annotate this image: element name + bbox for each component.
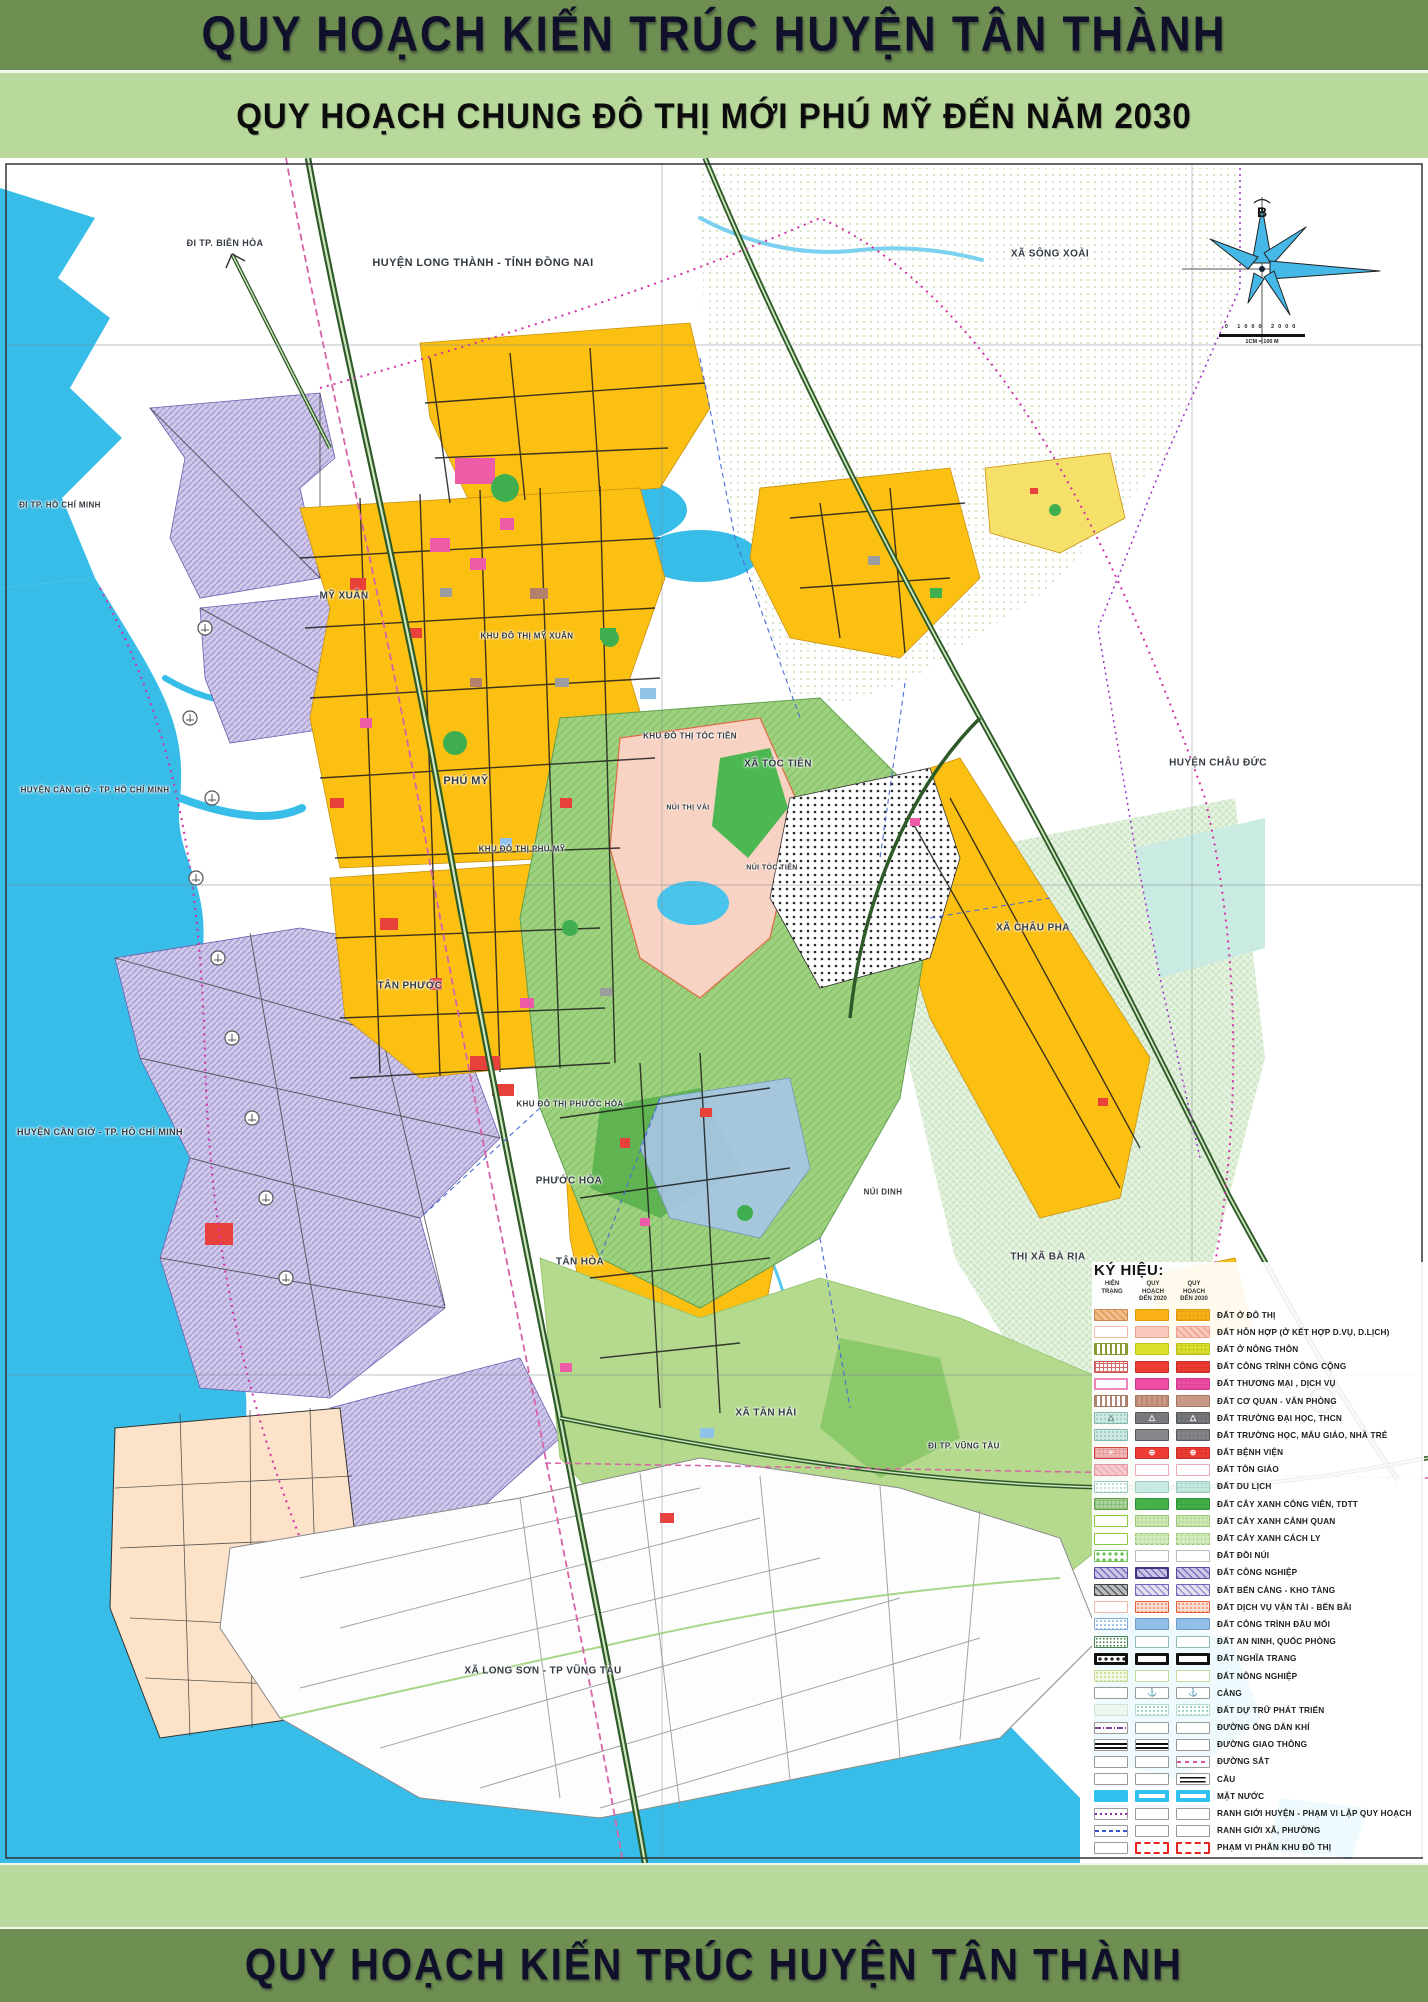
legend-row: ĐẤT CƠ QUAN - VĂN PHÒNG bbox=[1094, 1392, 1424, 1409]
legend-row: ĐẤT CÂY XANH CẢNH QUAN bbox=[1094, 1513, 1424, 1530]
legend-row-label: ĐẤT HỖN HỢP (Ở KẾT HỢP D.VỤ, D.LỊCH) bbox=[1217, 1328, 1424, 1337]
legend-swatch bbox=[1094, 1636, 1128, 1648]
legend-row: ĐẤT CÂY XANH CÁCH LY bbox=[1094, 1530, 1424, 1547]
legend-swatch: ⚓ bbox=[1135, 1687, 1169, 1699]
bottom-strip bbox=[0, 1863, 1428, 1929]
legend-swatch bbox=[1094, 1790, 1128, 1802]
legend-swatch bbox=[1176, 1584, 1210, 1596]
map-label: KHU ĐÔ THỊ TÓC TIÊN bbox=[643, 732, 737, 741]
legend-row-label: RANH GIỚI HUYỆN - PHẠM VI LẬP QUY HOẠCH bbox=[1217, 1809, 1424, 1818]
bottom-banner: QUY HOẠCH KIẾN TRÚC HUYỆN TÂN THÀNH bbox=[0, 1927, 1428, 2002]
scale-ticks: 0 1000 2000 bbox=[1225, 324, 1300, 330]
map-label: XÃ TÂN HẢI bbox=[735, 1408, 796, 1419]
legend-swatch bbox=[1176, 1481, 1210, 1493]
legend-row: △△△ĐẤT TRƯỜNG ĐẠI HỌC, THCN bbox=[1094, 1410, 1424, 1427]
legend-row: ĐẤT CÂY XANH CÔNG VIÊN, TDTT bbox=[1094, 1496, 1424, 1513]
legend-col-existing: HIỆN TRẠNG bbox=[1094, 1281, 1130, 1304]
legend-swatch: △ bbox=[1135, 1412, 1169, 1424]
legend-swatch bbox=[1176, 1722, 1210, 1734]
page-subtitle: QUY HOẠCH CHUNG ĐÔ THỊ MỚI PHÚ MỸ ĐẾN NĂ… bbox=[236, 95, 1191, 136]
map-label: HUYỆN CHÂU ĐỨC bbox=[1169, 758, 1267, 769]
legend-row-label: ĐẤT ĐỒI NÚI bbox=[1217, 1551, 1424, 1560]
legend-row-label: ĐẤT DỊCH VỤ VẬN TẢI - BẾN BÃI bbox=[1217, 1603, 1424, 1612]
legend-row-label: PHẠM VI PHÂN KHU ĐÔ THỊ bbox=[1217, 1843, 1424, 1852]
legend-row: ĐƯỜNG SẮT bbox=[1094, 1753, 1424, 1770]
map-label: XÃ SÔNG XOÀI bbox=[1011, 249, 1089, 260]
legend-row: ĐẤT TÔN GIÁO bbox=[1094, 1461, 1424, 1478]
legend-row: ĐẤT CÔNG NGHIỆP bbox=[1094, 1564, 1424, 1581]
legend-swatch bbox=[1135, 1464, 1169, 1476]
legend-swatch bbox=[1176, 1739, 1210, 1751]
legend-swatch: ⚓ bbox=[1176, 1687, 1210, 1699]
legend-row-label: CẦU bbox=[1217, 1775, 1424, 1784]
legend-row-label: MẶT NƯỚC bbox=[1217, 1792, 1424, 1801]
legend-row: MẶT NƯỚC bbox=[1094, 1788, 1424, 1805]
map-label: ĐI TP. BIÊN HÒA bbox=[187, 238, 264, 248]
legend-row-label: RANH GIỚI XÃ, PHƯỜNG bbox=[1217, 1826, 1424, 1835]
legend-swatch bbox=[1176, 1550, 1210, 1562]
legend-row: CẦU bbox=[1094, 1771, 1424, 1788]
legend-swatch bbox=[1135, 1618, 1169, 1630]
legend-swatch bbox=[1176, 1618, 1210, 1630]
legend-swatch bbox=[1094, 1808, 1128, 1820]
legend-swatch bbox=[1135, 1481, 1169, 1493]
map-label: XÃ LONG SƠN - TP VŨNG TÀU bbox=[464, 1666, 621, 1677]
legend-swatch bbox=[1094, 1842, 1128, 1854]
legend-swatch bbox=[1176, 1601, 1210, 1613]
legend-row-label: ĐẤT CÂY XANH CẢNH QUAN bbox=[1217, 1517, 1424, 1526]
legend-swatch bbox=[1135, 1550, 1169, 1562]
legend-row-label: ĐẤT TÔN GIÁO bbox=[1217, 1465, 1424, 1474]
legend-row-label: ĐẤT DU LỊCH bbox=[1217, 1482, 1424, 1491]
legend-swatch bbox=[1176, 1808, 1210, 1820]
legend-swatch bbox=[1094, 1567, 1128, 1579]
legend-swatch bbox=[1176, 1636, 1210, 1648]
legend-row: ĐẤT CÔNG TRÌNH ĐẦU MỐI bbox=[1094, 1616, 1424, 1633]
legend-row-label: ĐẤT CÂY XANH CÁCH LY bbox=[1217, 1534, 1424, 1543]
legend-swatch bbox=[1135, 1326, 1169, 1338]
legend-swatch bbox=[1094, 1825, 1128, 1837]
map-label: TÂN PHƯỚC bbox=[378, 981, 443, 992]
legend-swatch bbox=[1135, 1756, 1169, 1768]
legend-row-label: ĐẤT NGHĨA TRANG bbox=[1217, 1654, 1424, 1663]
legend-symbol-icon: ⚓ bbox=[1136, 1688, 1168, 1698]
legend-swatch bbox=[1094, 1309, 1128, 1321]
legend-swatch bbox=[1135, 1842, 1169, 1854]
legend-swatch bbox=[1094, 1618, 1128, 1630]
legend-swatch bbox=[1176, 1309, 1210, 1321]
legend-swatch bbox=[1176, 1842, 1210, 1854]
legend-row-label: ĐẤT TRƯỜNG HỌC, MẪU GIÁO, NHÀ TRẺ bbox=[1217, 1431, 1424, 1440]
legend-swatch bbox=[1135, 1309, 1169, 1321]
legend-swatch bbox=[1176, 1429, 1210, 1441]
legend-swatch bbox=[1176, 1567, 1210, 1579]
legend-row: ĐẤT DỰ TRỮ PHÁT TRIỂN bbox=[1094, 1702, 1424, 1719]
legend-rows: ĐẤT Ở ĐÔ THỊĐẤT HỖN HỢP (Ở KẾT HỢP D.VỤ,… bbox=[1092, 1307, 1424, 1857]
legend-row-label: ĐẤT CƠ QUAN - VĂN PHÒNG bbox=[1217, 1397, 1424, 1406]
map-label: TÂN HÒA bbox=[556, 1257, 604, 1268]
legend-row: RANH GIỚI HUYỆN - PHẠM VI LẬP QUY HOẠCH bbox=[1094, 1805, 1424, 1822]
legend-row: ĐẤT TRƯỜNG HỌC, MẪU GIÁO, NHÀ TRẺ bbox=[1094, 1427, 1424, 1444]
legend-row: +⊕⊕ĐẤT BỆNH VIỆN bbox=[1094, 1444, 1424, 1461]
map-label: PHÚ MỸ bbox=[443, 775, 488, 787]
legend-swatch bbox=[1094, 1343, 1128, 1355]
legend-swatch bbox=[1135, 1636, 1169, 1648]
legend-row-label: ĐẤT TRƯỜNG ĐẠI HỌC, THCN bbox=[1217, 1414, 1424, 1423]
legend-row: ⚓⚓CẢNG bbox=[1094, 1685, 1424, 1702]
legend-swatch bbox=[1176, 1790, 1210, 1802]
legend-swatch bbox=[1135, 1343, 1169, 1355]
legend-row-label: ĐẤT Ở ĐÔ THỊ bbox=[1217, 1311, 1424, 1320]
legend-symbol-icon: ⚓ bbox=[1177, 1688, 1209, 1698]
legend-swatch bbox=[1135, 1670, 1169, 1682]
legend-swatch bbox=[1176, 1464, 1210, 1476]
legend-swatch bbox=[1176, 1515, 1210, 1527]
legend-swatch bbox=[1135, 1395, 1169, 1407]
legend-row-label: ĐẤT CÔNG TRÌNH CÔNG CỘNG bbox=[1217, 1362, 1424, 1371]
legend-swatch bbox=[1094, 1687, 1128, 1699]
legend-swatch bbox=[1094, 1670, 1128, 1682]
legend-swatch bbox=[1176, 1653, 1210, 1665]
legend-swatch bbox=[1176, 1756, 1210, 1768]
legend-swatch bbox=[1094, 1584, 1128, 1596]
legend-row: PHẠM VI PHÂN KHU ĐÔ THỊ bbox=[1094, 1839, 1424, 1856]
legend-row: ĐẤT AN NINH, QUỐC PHÒNG bbox=[1094, 1633, 1424, 1650]
legend-swatch bbox=[1176, 1825, 1210, 1837]
map-label: ĐI TP. VŨNG TÀU bbox=[928, 1442, 1000, 1451]
legend-row: ĐƯỜNG ỐNG DẪN KHÍ bbox=[1094, 1719, 1424, 1736]
map-label: HUYỆN LONG THÀNH - TỈNH ĐỒNG NAI bbox=[372, 257, 593, 269]
legend-swatch bbox=[1176, 1378, 1210, 1390]
legend-row-label: ĐẤT DỰ TRỮ PHÁT TRIỂN bbox=[1217, 1706, 1424, 1715]
legend-swatch bbox=[1135, 1533, 1169, 1545]
legend-swatch: ⊕ bbox=[1176, 1447, 1210, 1459]
scale-caption: 1CM = 100 M bbox=[1245, 339, 1278, 345]
legend-swatch bbox=[1094, 1533, 1128, 1545]
map-label: NÚI THỊ VẢI bbox=[666, 805, 709, 812]
legend-row: ĐẤT BẾN CẢNG - KHO TÀNG bbox=[1094, 1582, 1424, 1599]
legend-swatch bbox=[1176, 1704, 1210, 1716]
legend-row: ĐẤT Ở ĐÔ THỊ bbox=[1094, 1307, 1424, 1324]
legend-row-label: ĐƯỜNG SẮT bbox=[1217, 1757, 1424, 1766]
legend-row-label: ĐẤT NÔNG NGHIỆP bbox=[1217, 1672, 1424, 1681]
legend-swatch bbox=[1135, 1567, 1169, 1579]
legend-row-label: ĐẤT AN NINH, QUỐC PHÒNG bbox=[1217, 1637, 1424, 1646]
legend-swatch bbox=[1135, 1653, 1169, 1665]
legend-symbol-icon: ⊕ bbox=[1177, 1448, 1209, 1458]
legend-swatch bbox=[1094, 1704, 1128, 1716]
legend-symbol-icon: △ bbox=[1095, 1413, 1127, 1423]
legend-swatch bbox=[1094, 1550, 1128, 1562]
legend-row-label: ĐẤT BẾN CẢNG - KHO TÀNG bbox=[1217, 1586, 1424, 1595]
map-label: XÃ CHÂU PHA bbox=[996, 923, 1070, 934]
legend-row: ĐẤT DỊCH VỤ VẬN TẢI - BẾN BÃI bbox=[1094, 1599, 1424, 1616]
legend-swatch bbox=[1094, 1722, 1128, 1734]
map-label: KHU ĐÔ THỊ PHƯỚC HÒA bbox=[516, 1100, 623, 1109]
legend-swatch: △ bbox=[1176, 1412, 1210, 1424]
map-label: MỸ XUÂN bbox=[320, 591, 369, 602]
legend-swatch bbox=[1176, 1498, 1210, 1510]
legend-swatch bbox=[1094, 1464, 1128, 1476]
map-label: KHU ĐÔ THỊ MỸ XUÂN bbox=[481, 632, 574, 641]
legend-swatch bbox=[1135, 1722, 1169, 1734]
legend-row-label: ĐẤT THƯƠNG MẠI , DỊCH VỤ bbox=[1217, 1379, 1424, 1388]
legend-symbol-icon: + bbox=[1095, 1448, 1127, 1458]
legend-row-label: ĐẤT CÂY XANH CÔNG VIÊN, TDTT bbox=[1217, 1500, 1424, 1509]
legend-swatch bbox=[1176, 1395, 1210, 1407]
legend-swatch bbox=[1135, 1429, 1169, 1441]
legend-swatch bbox=[1094, 1378, 1128, 1390]
map-label: KHU ĐÔ THỊ PHÚ MỸ bbox=[479, 845, 566, 854]
legend-swatch bbox=[1135, 1790, 1169, 1802]
legend-swatch bbox=[1135, 1825, 1169, 1837]
map-label: ĐI TP. HỒ CHÍ MINH bbox=[19, 501, 101, 510]
map-label: HUYỆN CẦN GIỜ - TP. HỒ CHÍ MINH bbox=[17, 1127, 183, 1137]
legend-row-label: ĐƯỜNG GIAO THÔNG bbox=[1217, 1740, 1424, 1749]
legend-swatch bbox=[1094, 1601, 1128, 1613]
legend-swatch bbox=[1094, 1326, 1128, 1338]
legend-row: RANH GIỚI XÃ, PHƯỜNG bbox=[1094, 1822, 1424, 1839]
legend-swatch bbox=[1094, 1756, 1128, 1768]
legend-swatch bbox=[1135, 1584, 1169, 1596]
planning-map: B 0 1000 2000 1CM = 100 M ĐI TP. BIÊN HÒ… bbox=[0, 158, 1428, 1863]
legend-row-label: CẢNG bbox=[1217, 1689, 1424, 1698]
map-label: HUYỆN CẦN GIỜ - TP. HỒ CHÍ MINH bbox=[21, 786, 170, 795]
map-label: NÚI DINH bbox=[864, 1188, 903, 1197]
map-label: THỊ XÃ BÀ RỊA bbox=[1010, 1252, 1085, 1263]
legend-col-2020: QUY HOẠCH ĐẾN 2020 bbox=[1135, 1281, 1171, 1304]
legend-row: ĐẤT THƯƠNG MẠI , DỊCH VỤ bbox=[1094, 1375, 1424, 1392]
legend-swatch bbox=[1135, 1498, 1169, 1510]
legend-symbol-icon: △ bbox=[1136, 1413, 1168, 1423]
legend-row-label: ĐẤT CÔNG TRÌNH ĐẦU MỐI bbox=[1217, 1620, 1424, 1629]
legend-row-label: ĐƯỜNG ỐNG DẪN KHÍ bbox=[1217, 1723, 1424, 1732]
legend-swatch: △ bbox=[1094, 1412, 1128, 1424]
top-banner: QUY HOẠCH KIẾN TRÚC HUYỆN TÂN THÀNH bbox=[0, 0, 1428, 73]
legend-col-2030: QUY HOẠCH ĐẾN 2030 bbox=[1176, 1281, 1212, 1304]
legend-swatch bbox=[1094, 1498, 1128, 1510]
legend-swatch bbox=[1094, 1361, 1128, 1373]
legend-row-label: ĐẤT BỆNH VIỆN bbox=[1217, 1448, 1424, 1457]
legend-swatch bbox=[1135, 1808, 1169, 1820]
compass-north-label: B bbox=[1257, 204, 1267, 220]
legend-row: ĐẤT DU LỊCH bbox=[1094, 1478, 1424, 1495]
legend-row: ĐƯỜNG GIAO THÔNG bbox=[1094, 1736, 1424, 1753]
legend-row: ĐẤT NÔNG NGHIỆP bbox=[1094, 1667, 1424, 1684]
legend-row: ĐẤT CÔNG TRÌNH CÔNG CỘNG bbox=[1094, 1358, 1424, 1375]
subtitle-banner: QUY HOẠCH CHUNG ĐÔ THỊ MỚI PHÚ MỸ ĐẾN NĂ… bbox=[0, 73, 1428, 158]
legend-swatch bbox=[1094, 1429, 1128, 1441]
legend-row: ĐẤT NGHĨA TRANG bbox=[1094, 1650, 1424, 1667]
legend-swatch bbox=[1135, 1601, 1169, 1613]
legend-swatch bbox=[1176, 1361, 1210, 1373]
legend-swatch bbox=[1176, 1670, 1210, 1682]
legend-symbol-icon: ⊕ bbox=[1136, 1448, 1168, 1458]
legend-row: ĐẤT HỖN HỢP (Ở KẾT HỢP D.VỤ, D.LỊCH) bbox=[1094, 1324, 1424, 1341]
legend-swatch bbox=[1094, 1739, 1128, 1751]
legend-swatch bbox=[1094, 1653, 1128, 1665]
legend-symbol-icon: △ bbox=[1177, 1413, 1209, 1423]
legend-swatch bbox=[1094, 1515, 1128, 1527]
legend-swatch bbox=[1176, 1343, 1210, 1355]
legend-row-label: ĐẤT CÔNG NGHIỆP bbox=[1217, 1568, 1424, 1577]
legend-swatch bbox=[1135, 1773, 1169, 1785]
scale-bar bbox=[1219, 334, 1305, 337]
map-label: PHƯỚC HÒA bbox=[536, 1176, 603, 1187]
legend-swatch bbox=[1135, 1361, 1169, 1373]
legend-row: ĐẤT Ở NÔNG THÔN bbox=[1094, 1341, 1424, 1358]
legend-swatch bbox=[1094, 1395, 1128, 1407]
map-label: NÚI TÓC TIÊN bbox=[746, 865, 797, 872]
map-legend: KÝ HIỆU: HIỆN TRẠNG QUY HOẠCH ĐẾN 2020 Q… bbox=[1092, 1262, 1424, 1857]
page-title: QUY HOẠCH KIẾN TRÚC HUYỆN TÂN THÀNH bbox=[202, 7, 1227, 63]
legend-swatch bbox=[1135, 1704, 1169, 1716]
legend-heading: KÝ HIỆU: bbox=[1094, 1262, 1424, 1279]
legend-row: ĐẤT ĐỒI NÚI bbox=[1094, 1547, 1424, 1564]
map-label: XÃ TÓC TIÊN bbox=[744, 759, 812, 770]
legend-swatch bbox=[1176, 1326, 1210, 1338]
legend-swatch: ⊕ bbox=[1135, 1447, 1169, 1459]
legend-swatch bbox=[1176, 1773, 1210, 1785]
legend-swatch bbox=[1135, 1515, 1169, 1527]
legend-column-headers: HIỆN TRẠNG QUY HOẠCH ĐẾN 2020 QUY HOẠCH … bbox=[1094, 1281, 1424, 1304]
legend-swatch bbox=[1135, 1378, 1169, 1390]
legend-swatch: + bbox=[1094, 1447, 1128, 1459]
legend-row-label: ĐẤT Ở NÔNG THÔN bbox=[1217, 1345, 1424, 1354]
legend-swatch bbox=[1176, 1533, 1210, 1545]
legend-swatch bbox=[1135, 1739, 1169, 1751]
legend-swatch bbox=[1094, 1773, 1128, 1785]
bottom-title: QUY HOẠCH KIẾN TRÚC HUYỆN TÂN THÀNH bbox=[245, 1940, 1183, 1990]
legend-swatch bbox=[1094, 1481, 1128, 1493]
